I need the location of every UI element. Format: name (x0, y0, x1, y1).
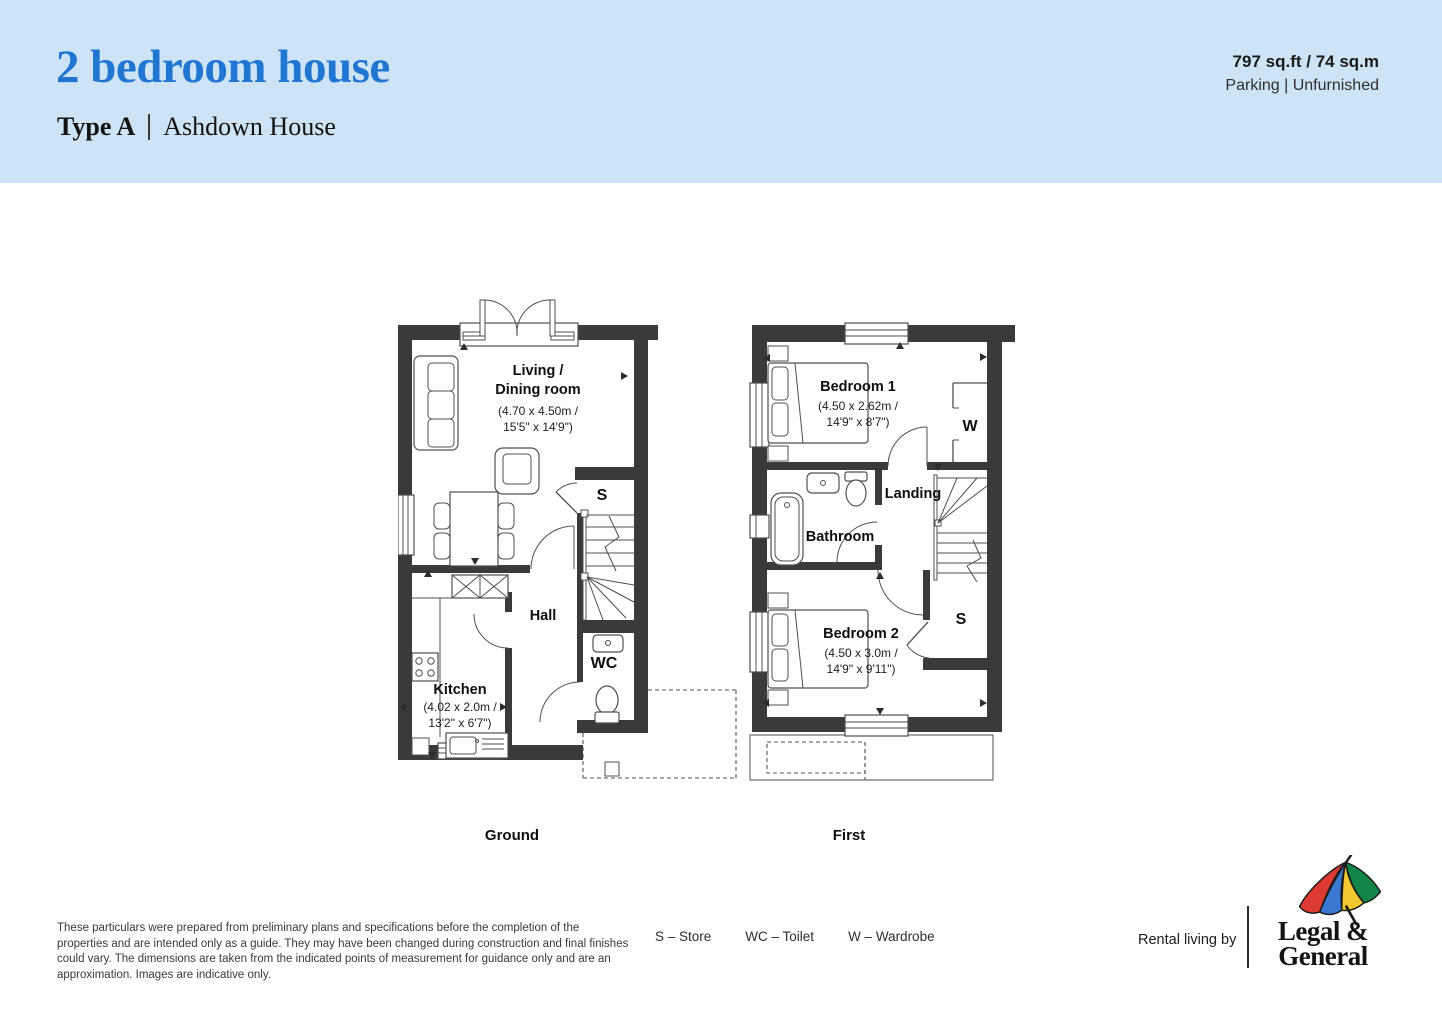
legend-store: S – Store (655, 929, 711, 944)
disclaimer-text: These particulars were prepared from pre… (57, 921, 632, 983)
living-room-dims: (4.70 x 4.50m / 15'5" x 14'9") (458, 403, 618, 435)
hall-label: Hall (513, 607, 573, 626)
first-store-label: S (946, 611, 976, 629)
wc-label: WC (584, 655, 624, 673)
ground-floor-name: Ground (452, 827, 572, 844)
bathroom-sink (807, 473, 839, 493)
plan-legend: S – Store WC – Toilet W – Wardrobe (655, 929, 935, 944)
legend-wardrobe: W – Wardrobe (848, 929, 935, 944)
first-floor-plan: Bedroom 1 (4.50 x 2.62m / 14'9" x 8'7") … (745, 290, 1015, 790)
bedroom1-dims: (4.50 x 2.62m / 14'9" x 8'7") (778, 398, 938, 430)
floor-area: 797 sq.ft / 74 sq.m (1225, 52, 1379, 72)
ground-store-label: S (592, 487, 612, 505)
kitchen-label: Kitchen (410, 681, 510, 700)
first-dashed-outline (750, 735, 993, 780)
bedroom2-label: Bedroom 2 (791, 625, 931, 644)
floorplan-page: 2 bedroom house Type A Ashdown House 797… (0, 0, 1442, 1020)
bathroom-label: Bathroom (790, 528, 890, 547)
legal-general-logo: Legal & General (1258, 855, 1388, 973)
header-banner: 2 bedroom house Type A Ashdown House 797… (0, 0, 1442, 183)
ground-floor-plan: Living / Dining room (4.70 x 4.50m / 15'… (398, 290, 738, 790)
meter-box (412, 738, 429, 755)
dining-table (434, 492, 514, 566)
subtitle-divider (148, 114, 150, 140)
entrance-doors (460, 300, 578, 346)
type-label: Type A (57, 112, 135, 142)
rental-living-by: Rental living by (1138, 932, 1236, 948)
hob (412, 653, 438, 681)
living-room-label: Living / Dining room (468, 362, 608, 400)
page-subtitle: Type A Ashdown House (57, 112, 336, 142)
first-floor-name: First (789, 827, 909, 844)
features: Parking | Unfurnished (1225, 77, 1379, 95)
header-right: 797 sq.ft / 74 sq.m Parking | Unfurnishe… (1225, 52, 1379, 95)
sofa (414, 356, 458, 450)
umbrella-icon (1294, 855, 1386, 925)
bedroom2-dims: (4.50 x 3.0m / 14'9" x 9'11") (781, 645, 941, 677)
stairs (581, 510, 634, 620)
wc-sink (593, 635, 623, 652)
kitchen-sink (446, 733, 508, 758)
landing-label: Landing (873, 485, 953, 504)
bedroom1-label: Bedroom 1 (788, 378, 928, 397)
wc-toilet (595, 686, 619, 723)
legend-toilet: WC – Toilet (745, 929, 814, 944)
logo-wordmark: Legal & General (1258, 919, 1388, 969)
wardrobe-label: W (955, 418, 985, 436)
logo-divider (1247, 906, 1249, 968)
bathroom-toilet (845, 472, 867, 506)
page-title: 2 bedroom house (56, 40, 390, 94)
kitchen-dims: (4.02 x 2.0m / 13'2" x 6'7") (405, 699, 515, 731)
house-name: Ashdown House (163, 112, 336, 142)
armchair (495, 448, 539, 494)
